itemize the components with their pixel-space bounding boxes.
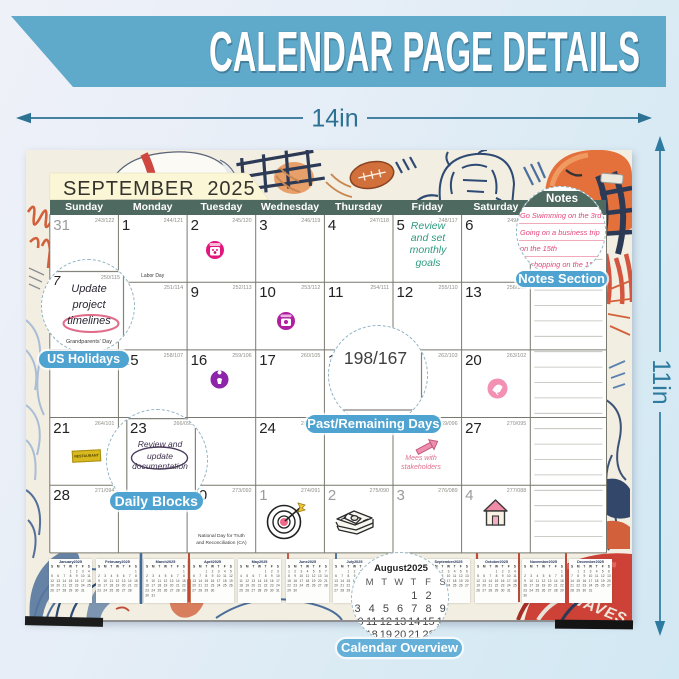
svg-text:14in: 14in bbox=[311, 105, 358, 133]
svg-text:11in: 11in bbox=[647, 359, 675, 404]
